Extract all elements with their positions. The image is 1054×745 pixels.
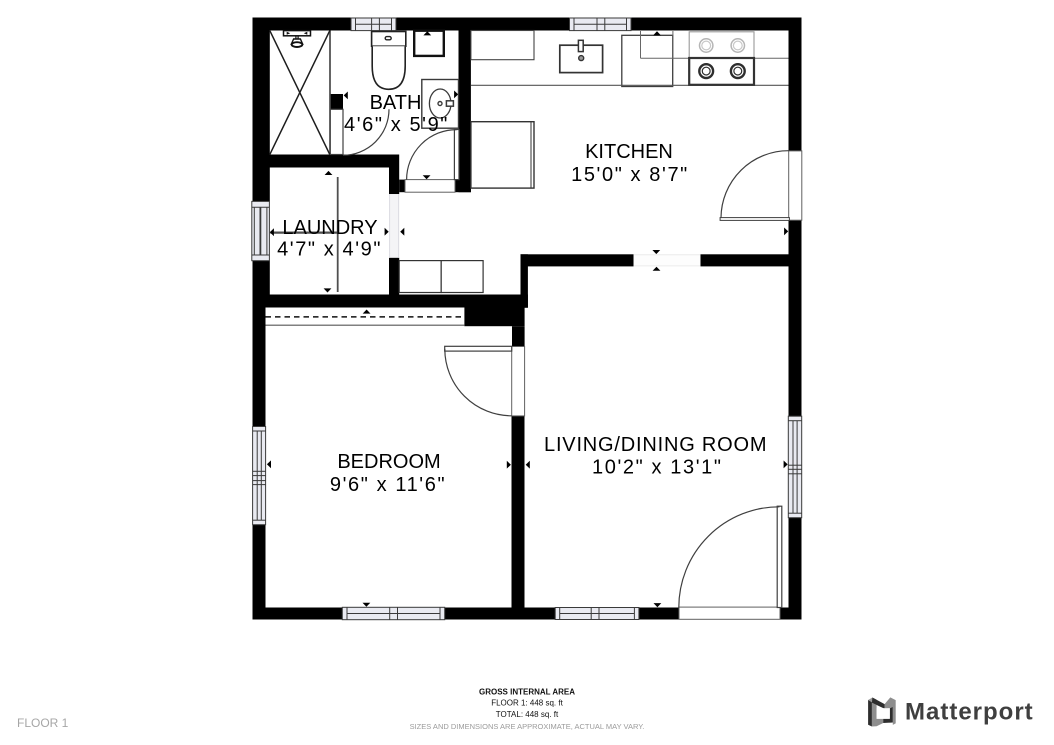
svg-text:Matterport: Matterport <box>905 699 1034 726</box>
svg-text:KITCHEN: KITCHEN <box>585 141 673 163</box>
svg-text:FLOOR 1: FLOOR 1 <box>17 716 69 730</box>
svg-text:FLOOR 1: 448 sq. ft: FLOOR 1: 448 sq. ft <box>491 699 563 708</box>
svg-text:BATH: BATH <box>370 92 422 114</box>
svg-text:9'6" x 11'6": 9'6" x 11'6" <box>330 474 446 496</box>
svg-text:4'7" x 4'9": 4'7" x 4'9" <box>277 239 382 261</box>
svg-text:SIZES AND DIMENSIONS ARE APPRO: SIZES AND DIMENSIONS ARE APPROXIMATE, AC… <box>410 722 645 731</box>
svg-text:LIVING/DINING ROOM: LIVING/DINING ROOM <box>544 434 767 456</box>
svg-text:LAUNDRY: LAUNDRY <box>282 217 377 239</box>
svg-text:TOTAL: 448 sq. ft: TOTAL: 448 sq. ft <box>496 710 559 719</box>
svg-text:15'0" x 8'7": 15'0" x 8'7" <box>571 164 689 186</box>
svg-text:BEDROOM: BEDROOM <box>337 451 440 473</box>
svg-text:GROSS INTERNAL AREA: GROSS INTERNAL AREA <box>479 687 575 696</box>
svg-text:4'6" x 5'9": 4'6" x 5'9" <box>344 114 449 136</box>
svg-text:10'2" x 13'1": 10'2" x 13'1" <box>592 457 723 479</box>
